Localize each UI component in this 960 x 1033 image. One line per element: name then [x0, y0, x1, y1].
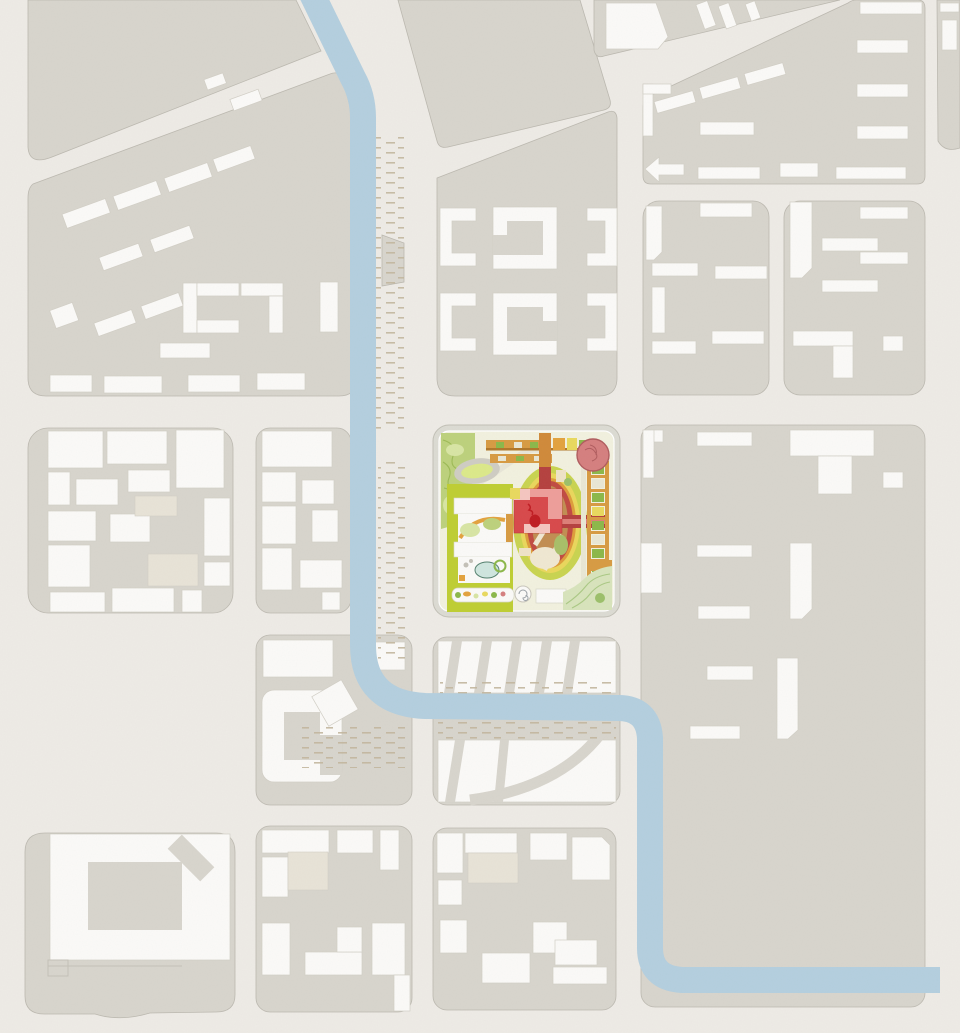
- paper-grain-overlay: [0, 0, 960, 1033]
- site-plan-map: [0, 0, 960, 1033]
